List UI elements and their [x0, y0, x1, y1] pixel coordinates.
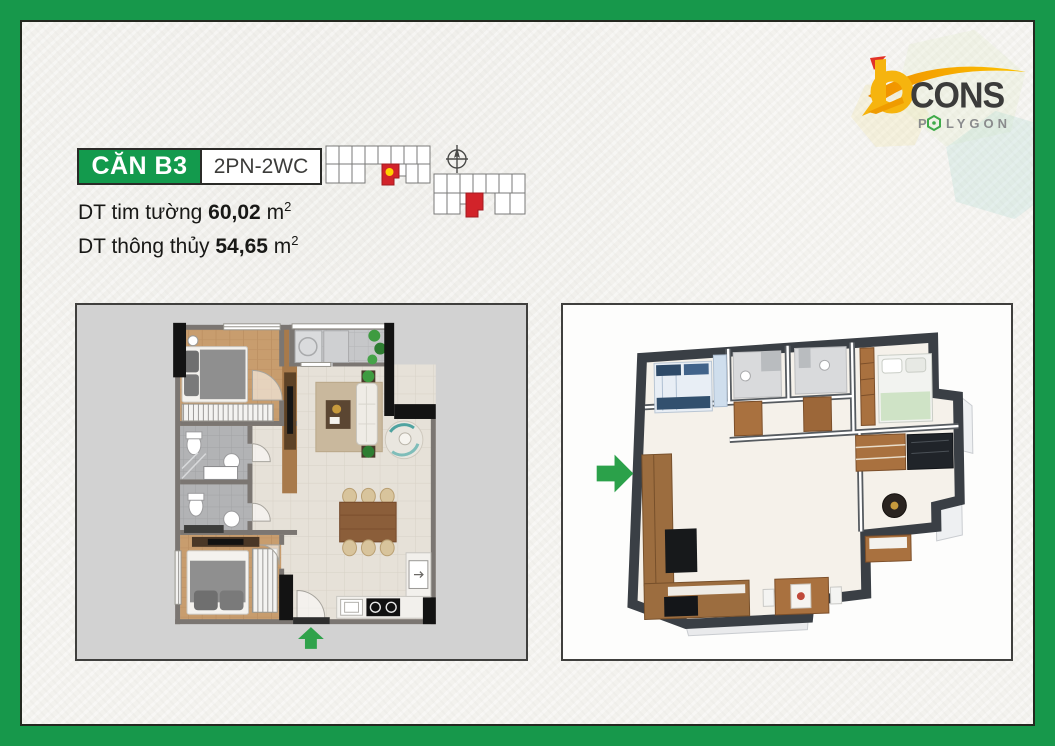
floor-plan-3d — [563, 305, 1011, 660]
plant-icon — [367, 355, 377, 365]
area-label: DT thông thủy — [78, 235, 210, 258]
entrance-arrow-icon — [298, 627, 324, 649]
area-exponent: 2 — [291, 233, 298, 248]
wardrobe — [252, 549, 277, 612]
keyplan-unit-highlight-2 — [466, 193, 483, 217]
compass-icon — [446, 145, 468, 173]
area-label: DT tim tường — [78, 201, 202, 224]
entrance-arrow-icon — [597, 455, 634, 493]
area-line-gross: DT tim tường 60,02 m2 — [78, 193, 299, 227]
building-keyplan — [320, 138, 535, 253]
area-exponent: 2 — [284, 199, 291, 214]
area-line-net: DT thông thủy 54,65 m2 — [78, 227, 299, 261]
keyplan-unit-marker — [386, 168, 394, 176]
bedroom2-3d — [860, 346, 933, 426]
area-value: 60,02 — [208, 201, 261, 224]
tv-cabinet-3d — [856, 432, 954, 471]
plant-icon — [362, 446, 374, 458]
dining-table — [340, 502, 396, 542]
unit-type-badge: 2PN-2WC — [200, 150, 320, 183]
floor-plan-sheet: CĂN B3 2PN-2WC DT tim tường 60,02 m2 DT … — [0, 0, 1055, 746]
bedroom1-3d — [654, 355, 727, 413]
wardrobe — [182, 404, 273, 421]
svg-text:LYGON: LYGON — [946, 116, 1011, 131]
plan-3d-panel — [561, 303, 1013, 661]
area-value: 54,65 — [215, 235, 268, 258]
coffee-table — [326, 400, 351, 429]
plant-icon — [362, 370, 374, 382]
plan-2d-panel — [75, 303, 528, 661]
logo-polygon-text: P LYGON — [918, 116, 1011, 131]
logo-cons-text: CONS — [910, 76, 1004, 116]
cooktop — [366, 598, 400, 616]
keyplan-wing-a — [326, 146, 430, 183]
floor-plan-2d — [77, 305, 526, 660]
sink — [341, 599, 363, 615]
plant-icon — [368, 330, 380, 342]
bcons-polygon-logo: CONS P LYGON — [858, 50, 1033, 142]
area-unit: m — [267, 201, 285, 224]
unit-name-badge: CĂN B3 — [79, 150, 200, 183]
area-info: DT tim tường 60,02 m2 DT thông thủy 54,6… — [78, 193, 299, 261]
unit-label: CĂN B3 2PN-2WC — [77, 148, 322, 185]
dining-set — [340, 488, 396, 555]
area-unit: m — [274, 235, 292, 258]
